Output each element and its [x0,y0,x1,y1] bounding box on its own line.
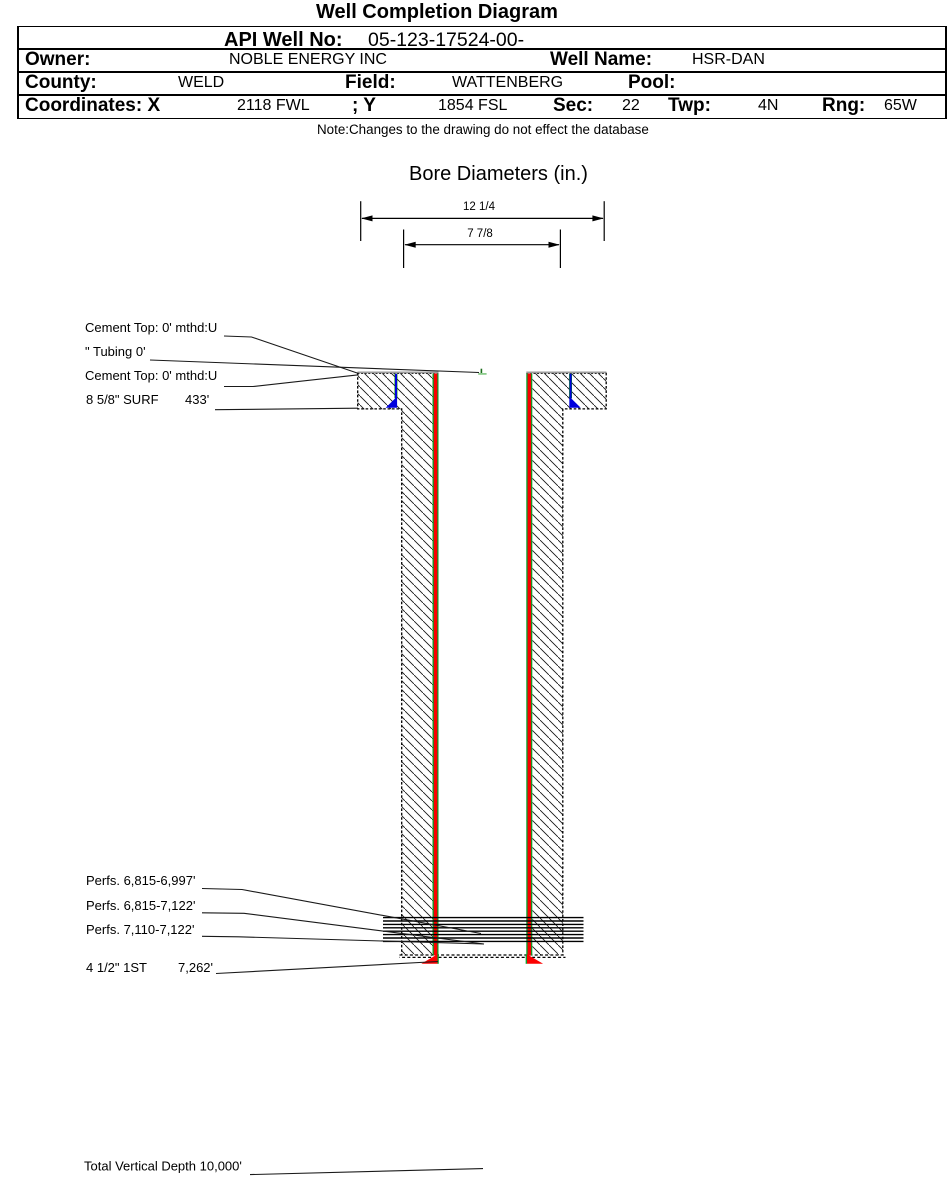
svg-text:Perfs. 7,110-7,122': Perfs. 7,110-7,122' [86,922,194,937]
svg-text:433': 433' [185,392,209,407]
svg-text:Perfs. 6,815-7,122': Perfs. 6,815-7,122' [86,898,195,913]
svg-text:Cement Top: 0' mthd:U: Cement Top: 0' mthd:U [85,368,217,383]
svg-text:8 5/8" SURF: 8 5/8" SURF [86,392,159,407]
svg-text:" Tubing 0': " Tubing 0' [85,344,146,359]
svg-text:7,262': 7,262' [178,960,213,975]
svg-text:7 7/8: 7 7/8 [467,228,493,240]
svg-text:Total Vertical Depth 10,000': Total Vertical Depth 10,000' [84,1159,242,1174]
svg-text:Perfs. 6,815-6,997': Perfs. 6,815-6,997' [86,873,195,888]
svg-text:4 1/2" 1ST: 4 1/2" 1ST [86,960,147,975]
svg-text:Cement Top: 0' mthd:U: Cement Top: 0' mthd:U [85,320,217,335]
svg-text:12 1/4: 12 1/4 [463,201,496,213]
